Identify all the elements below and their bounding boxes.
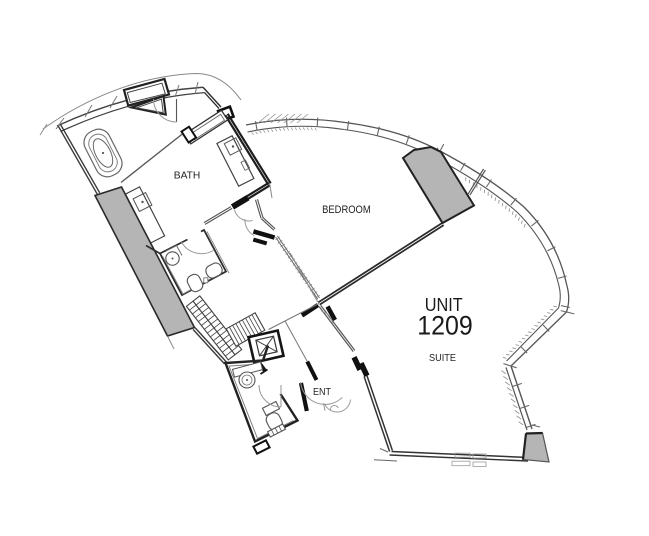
svg-text:SUITE: SUITE	[429, 352, 456, 364]
svg-text:1209: 1209	[417, 311, 473, 341]
svg-text:BATH: BATH	[174, 170, 201, 182]
svg-text:ENT: ENT	[313, 387, 331, 398]
svg-text:BEDROOM: BEDROOM	[322, 204, 371, 216]
